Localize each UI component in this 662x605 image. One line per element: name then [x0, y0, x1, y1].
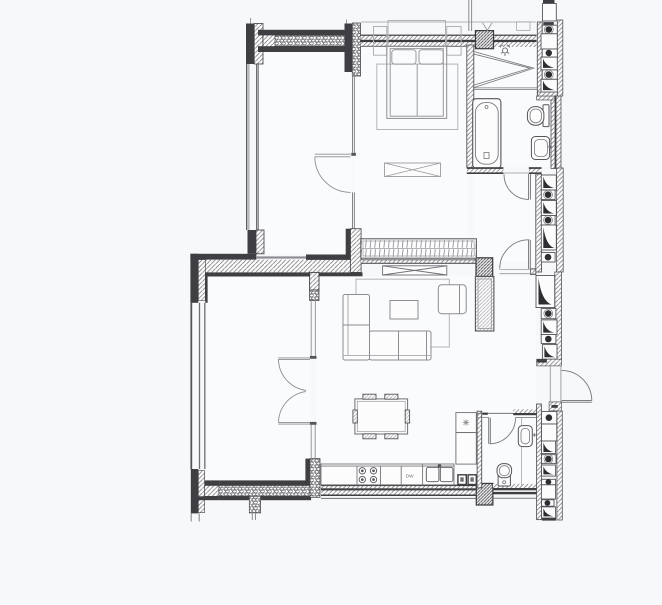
svg-text:DW: DW — [406, 474, 414, 479]
